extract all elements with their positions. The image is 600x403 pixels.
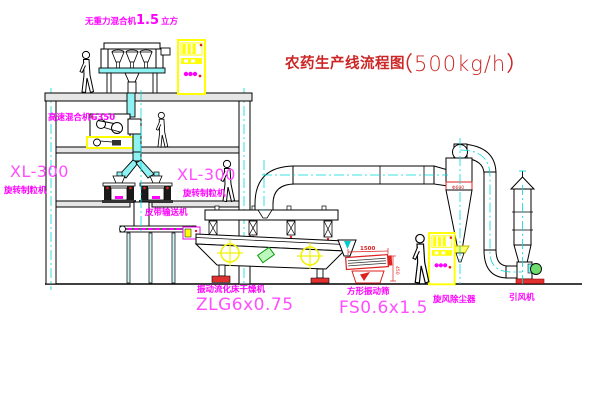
process-flow-diagram: 农药生产线流程图 （500kg/h） 无重力混合机1.5立方 高速混合机G350… [0, 0, 600, 403]
label-screen-model: FS0.6x1.5 [339, 298, 428, 318]
fan-base [516, 279, 544, 284]
label-belt-conveyor: 皮带输送机 [144, 207, 188, 218]
induced-draft-fan [516, 262, 544, 284]
label-dryer-model: ZLG6x0.75 [196, 295, 294, 315]
roof-slab [45, 93, 252, 101]
label-granulator-right-model: XL-300 [177, 165, 236, 184]
label-cyclone: 旋风除尘器 [432, 294, 476, 305]
cyclone-marking-text: Φ600 [452, 185, 464, 191]
control-cabinet-1 [178, 40, 205, 94]
label-granulator-left-model: XL-300 [10, 162, 69, 181]
label-fan: 引风机 [509, 292, 535, 303]
conveyor-leg [172, 233, 175, 283]
fan-motor [531, 264, 542, 275]
mixer-discharge-box [128, 119, 141, 134]
conveyor-leg [127, 233, 130, 283]
dim-text-1500: 1500 [360, 246, 375, 252]
mixer-funnels [112, 50, 152, 68]
label-granulator-left-name: 旋转制粒机 [3, 185, 47, 196]
dim-text-450: 450 [394, 266, 400, 275]
label-high-speed-mixer: 高速混合机G350 [48, 112, 115, 123]
control-cabinet-2 [429, 233, 455, 284]
dryer-foot-pad [212, 276, 230, 283]
label-screen-name: 方形振动筛 [347, 286, 390, 297]
label-granulator-right-name: 旋转制粒机 [182, 188, 226, 199]
mixer-discharge-pipe [133, 134, 141, 153]
title-capacity: （500kg/h） [392, 52, 528, 76]
feed-pipe [127, 93, 135, 117]
floor-slab-2 [56, 147, 239, 153]
title-text: 农药生产线流程图 [284, 54, 405, 72]
label-dryer-name: 振动流化床干燥机 [197, 284, 266, 295]
conveyor-leg [149, 233, 152, 283]
dryer-foot-pad [311, 278, 329, 283]
